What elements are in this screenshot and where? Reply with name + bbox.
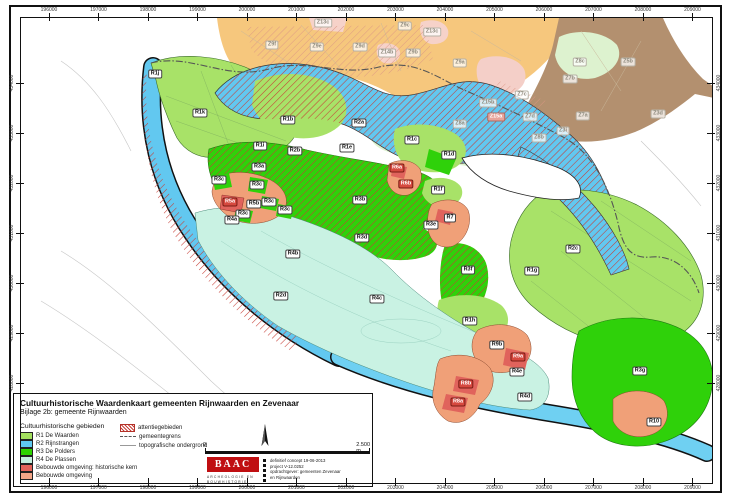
north-arrow-icon [259, 424, 271, 450]
region-label-r3c: R3c [277, 206, 292, 215]
y-axis-label-left: 432000 [9, 175, 15, 192]
legend-color-swatch [20, 464, 33, 472]
y-axis-label-right: 430000 [716, 275, 722, 292]
legend-color-swatch [20, 456, 33, 464]
legend-symbol-list: attentiegebieden gemeentegrens topografi… [120, 423, 207, 450]
legend-label: topografische ondergrond [139, 443, 207, 449]
logo-square [263, 469, 266, 472]
axis-tick [197, 478, 198, 486]
y-axis-label-right: 431000 [716, 225, 722, 242]
region-label-z3i: Z3i [557, 127, 570, 136]
axis-tick [643, 478, 644, 486]
scalebar [205, 451, 370, 454]
legend-label: R1 De Waarden [36, 433, 79, 439]
axis-tick [544, 478, 545, 486]
region-label-z7c: Z7c [515, 91, 529, 100]
axis-tick [296, 13, 297, 21]
region-label-z14b: Z14b [378, 49, 396, 58]
region-label-z5b: Z5b [621, 58, 636, 67]
region-label-z9c: Z9c [398, 22, 412, 31]
region-label-z9b: Z9b [406, 49, 421, 58]
region-label-r2a: R2a [351, 119, 366, 128]
region-label-r2c: R2c [565, 245, 580, 254]
y-axis-label-left: 429000 [9, 325, 15, 342]
region-label-z8b: Z8b [532, 134, 547, 143]
legend-label: R4 De Plassen [36, 457, 76, 463]
logo-square [263, 479, 266, 482]
region-label-r1i: R1i [253, 142, 267, 151]
axis-tick [148, 13, 149, 21]
axis-tick [395, 478, 396, 486]
legend-panel: Cultuurhistorische Waardenkaart gemeente… [13, 393, 373, 487]
legend-item-attention: attentiegebieden [120, 423, 207, 432]
region-label-r2b: R2b [287, 147, 302, 156]
axis-tick [707, 283, 715, 284]
axis-tick [494, 478, 495, 486]
y-axis-label-left: 431000 [9, 225, 15, 242]
legend-item-topo: topografische ondergrond [120, 441, 207, 450]
axis-tick [148, 478, 149, 486]
region-label-r1b: R1b [280, 116, 295, 125]
region-label-r1d: R1d [441, 151, 456, 160]
axis-tick [395, 13, 396, 21]
legend-areas-header: Cultuurhistorische gebieden [20, 423, 104, 430]
axis-tick [16, 83, 24, 84]
region-label-r3d: R3d [354, 234, 369, 243]
map-subtitle: Bijlage 2b: gemeente Rijnwaarden [20, 409, 127, 416]
axis-tick [593, 13, 594, 21]
axis-tick [16, 183, 24, 184]
region-label-r3e: R3e [423, 221, 438, 230]
legend-item-r4-de-plassen: R4 De Plassen [20, 456, 137, 464]
axis-tick [49, 478, 50, 486]
colophon: definitief concept 19-06-2013project V-1… [270, 458, 341, 480]
colophon-line: en Rijnwaarden [270, 475, 341, 481]
region-label-z9e: Z9e [310, 43, 324, 52]
y-axis-label-right: 434000 [716, 75, 722, 92]
region-label-r1f: R1f [431, 186, 445, 195]
axis-tick [643, 13, 644, 21]
region-label-r3c: R3c [211, 176, 226, 185]
region-label-r6b: R6b [398, 180, 413, 189]
axis-tick [707, 83, 715, 84]
region-label-z9d: Z9d [353, 43, 368, 52]
legend-label: attentiegebieden [138, 425, 182, 431]
axis-tick [445, 478, 446, 486]
municipal-boundary-swatch [120, 436, 136, 437]
logo-square [263, 464, 266, 467]
region-label-r4a: R4a [224, 216, 239, 225]
axis-tick [692, 478, 693, 486]
y-axis-label-right: 429000 [716, 325, 722, 342]
axis-tick [98, 13, 99, 21]
region-label-r4c: R4c [369, 295, 384, 304]
y-axis-label-left: 433000 [9, 125, 15, 142]
baac-logo: BAAC [207, 457, 259, 472]
legend-item-bebouwde-omgeving-historische-kern: Bebouwde omgeving: historische kern [20, 464, 137, 472]
region-label-z8a: Z8a [453, 120, 467, 129]
region-label-r1c: R1c [404, 136, 419, 145]
axis-tick [707, 183, 715, 184]
map-title: Cultuurhistorische Waardenkaart gemeente… [20, 398, 299, 408]
legend-color-swatch [20, 448, 33, 456]
legend-label: Bebouwde omgeving [36, 473, 92, 479]
y-axis-label-right: 432000 [716, 175, 722, 192]
logo-square [263, 459, 266, 462]
axis-tick [707, 233, 715, 234]
region-label-r3c: R3c [261, 198, 276, 207]
colophon-line: opdrachtgever: gemeenten Zevenaar [270, 469, 341, 475]
region-label-r6a: R6a [389, 164, 404, 173]
region-label-r10: R10 [646, 418, 661, 427]
axis-tick [49, 13, 50, 21]
region-label-r9b: R9b [489, 341, 504, 350]
legend-color-swatch [20, 432, 33, 440]
region-label-r2d: R2d [273, 292, 288, 301]
region-label-z7b: Z7b [563, 75, 578, 84]
axis-tick [707, 333, 715, 334]
region-label-r1j: R1j [148, 70, 162, 79]
axis-tick [247, 478, 248, 486]
region-label-z13c: Z13c [314, 19, 332, 28]
region-label-r9a: R9a [510, 353, 525, 362]
axis-tick [16, 333, 24, 334]
region-label-r7: R7 [444, 214, 456, 223]
axis-tick [197, 13, 198, 21]
map-document: R1jR1kR1bR2aR1iR2bR1eR1cR1dR1fR3aR3cR3cR… [0, 0, 732, 499]
region-label-r4d: R4d [517, 393, 532, 402]
region-label-z13c: Z13c [423, 28, 441, 37]
legend-label: gemeentegrens [139, 434, 181, 440]
y-axis-label-left: 430000 [9, 275, 15, 292]
legend-item-boundary: gemeentegrens [120, 432, 207, 441]
legend-label: R2 Rijnstrangen [36, 441, 79, 447]
region-label-r3b: R3b [352, 196, 367, 205]
axis-tick [16, 283, 24, 284]
legend-label: Bebouwde omgeving: historische kern [36, 465, 137, 471]
axis-tick [346, 13, 347, 21]
axis-tick [346, 478, 347, 486]
logo-square [263, 474, 266, 477]
region-label-r1g: R1g [524, 267, 539, 276]
axis-tick [16, 383, 24, 384]
region-label-z8c: Z8c [573, 58, 587, 67]
region-label-r3a: R3a [251, 163, 266, 172]
region-label-r8a: R8a [450, 398, 465, 407]
y-axis-label-right: 433000 [716, 125, 722, 142]
region-label-z7d: Z7d [523, 113, 538, 122]
axis-tick [98, 478, 99, 486]
region-label-z15a: Z15a [487, 113, 505, 122]
legend-color-swatch [20, 440, 33, 448]
axis-tick [16, 133, 24, 134]
y-axis-label-left: 428000 [9, 375, 15, 392]
y-axis-label-left: 434000 [9, 75, 15, 92]
region-label-z9f: Z9f [265, 41, 278, 50]
region-label-r3f: R3f [461, 266, 475, 275]
baac-tagline-2: BOUWHISTORIE [207, 480, 248, 484]
region-label-r3c: R3c [249, 181, 264, 190]
region-label-z15b: Z15b [479, 99, 497, 108]
region-label-r1e: R1e [339, 144, 354, 153]
region-label-r8b: R8b [458, 380, 473, 389]
legend-item-bebouwde-omgeving: Bebouwde omgeving [20, 472, 137, 480]
axis-tick [544, 13, 545, 21]
region-label-r5b: R5b [246, 200, 261, 209]
region-label-z3d: Z3d [651, 110, 666, 119]
region-label-r1k: R1k [192, 109, 207, 118]
axis-tick [707, 383, 715, 384]
axis-tick [692, 13, 693, 21]
y-axis-label-right: 428000 [716, 375, 722, 392]
region-label-z9a: Z9a [453, 59, 467, 68]
axis-tick [494, 13, 495, 21]
region-label-r1h: R1h [462, 317, 477, 326]
legend-color-swatch [20, 472, 33, 480]
axis-tick [247, 13, 248, 21]
region-label-r3g: R3g [632, 367, 647, 376]
axis-tick [296, 478, 297, 486]
region-label-r4b: R4b [285, 250, 300, 259]
region-label-z7a: Z7a [576, 112, 590, 121]
axis-tick [16, 233, 24, 234]
axis-tick [445, 13, 446, 21]
attention-hatch-swatch [120, 424, 135, 432]
axis-tick [707, 133, 715, 134]
baac-logo-text: BAAC [215, 459, 251, 470]
region-label-r4e: R4e [509, 368, 524, 377]
axis-tick [593, 478, 594, 486]
topographic-line-swatch [120, 445, 136, 446]
region-label-r5a: R5a [222, 198, 237, 207]
legend-label: R3 De Polders [36, 449, 75, 455]
